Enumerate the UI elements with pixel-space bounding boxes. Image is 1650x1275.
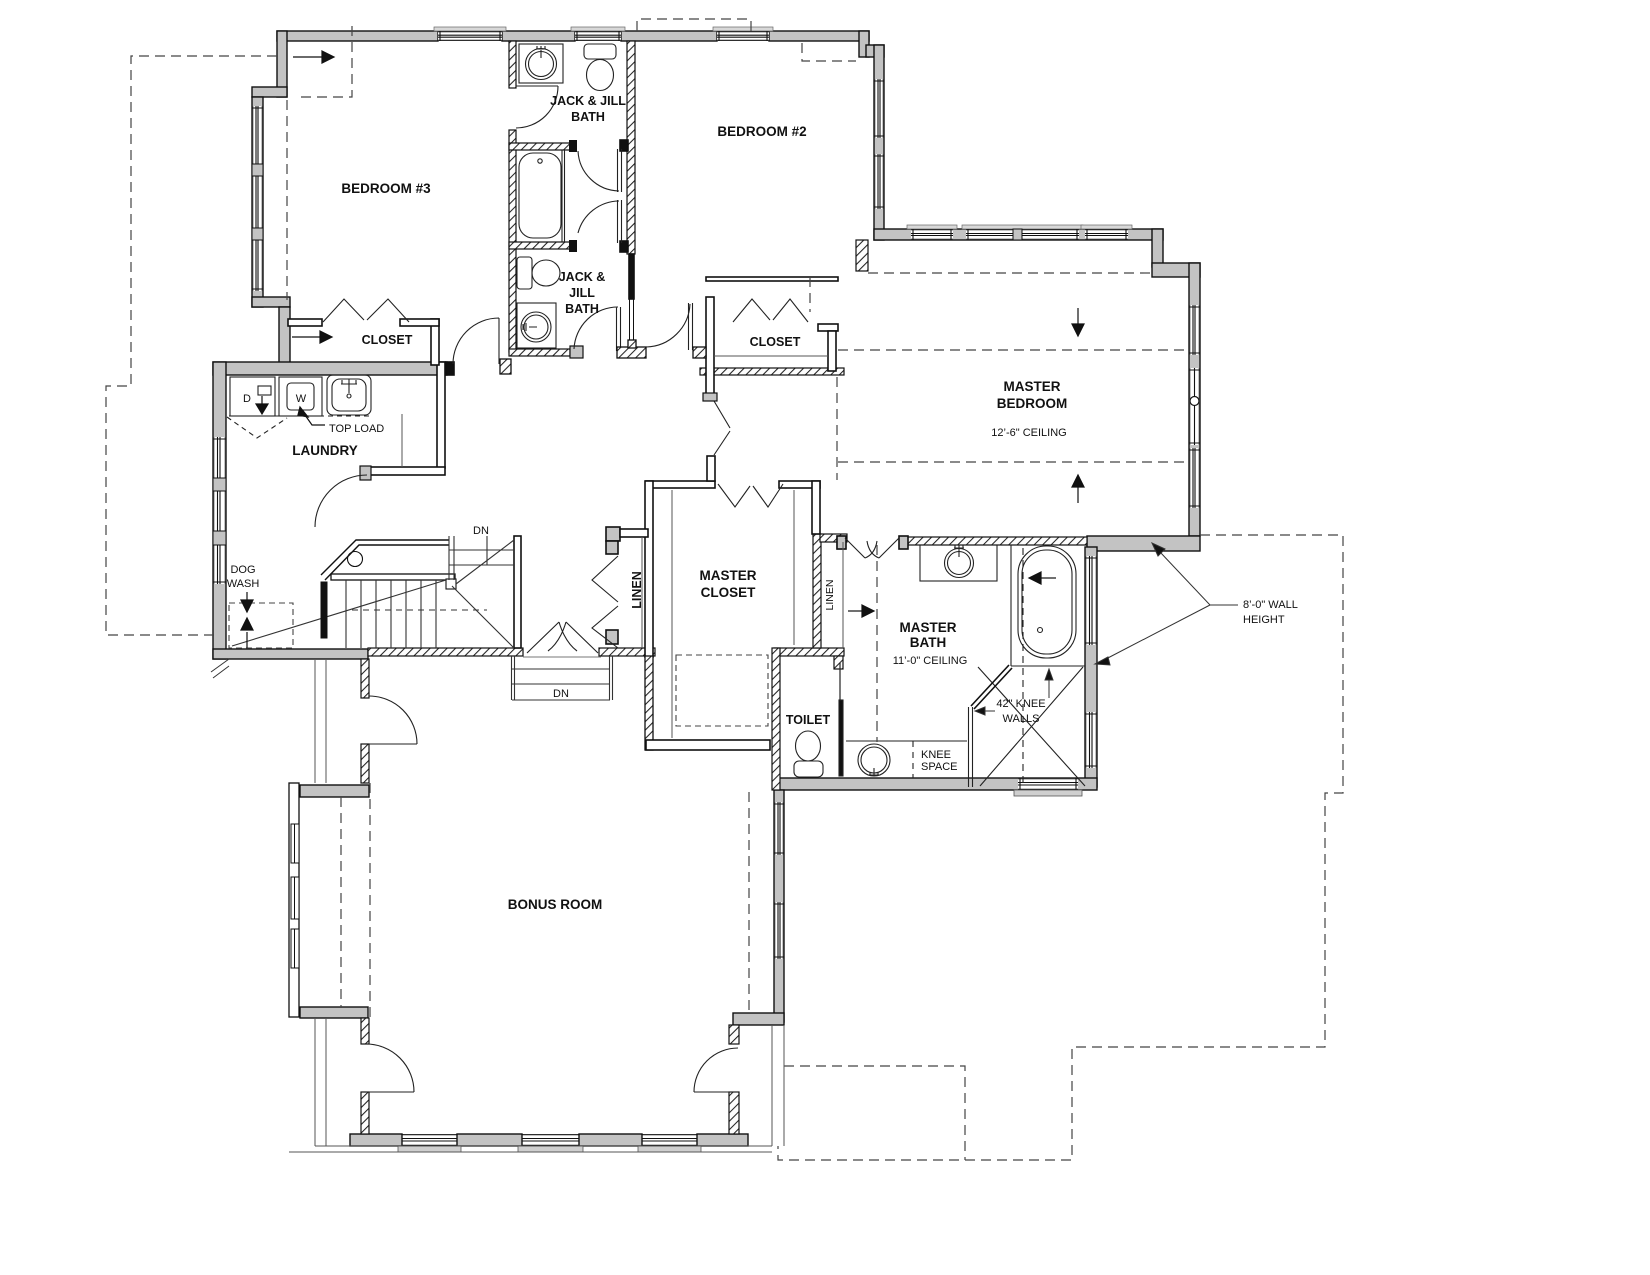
- svg-text:DN: DN: [553, 688, 569, 700]
- svg-text:MASTER: MASTER: [1004, 379, 1061, 394]
- svg-text:LAUNDRY: LAUNDRY: [292, 443, 358, 458]
- svg-text:W: W: [296, 393, 307, 405]
- svg-text:CLOSET: CLOSET: [750, 335, 801, 349]
- svg-text:BATH: BATH: [910, 635, 947, 650]
- svg-text:DOG: DOG: [230, 564, 255, 576]
- svg-text:TOP LOAD: TOP LOAD: [329, 423, 384, 435]
- svg-text:TOILET: TOILET: [786, 713, 831, 727]
- svg-text:WASH: WASH: [227, 578, 260, 590]
- svg-text:HEIGHT: HEIGHT: [1243, 614, 1285, 626]
- svg-text:BEDROOM #2: BEDROOM #2: [717, 124, 806, 139]
- svg-text:CLOSET: CLOSET: [701, 585, 757, 600]
- svg-text:BATH: BATH: [571, 110, 605, 124]
- svg-text:MASTER: MASTER: [700, 568, 757, 583]
- svg-text:BONUS ROOM: BONUS ROOM: [508, 897, 603, 912]
- svg-text:LINEN: LINEN: [630, 571, 644, 609]
- svg-text:JILL: JILL: [569, 286, 595, 300]
- svg-text:JACK &: JACK &: [559, 270, 606, 284]
- svg-text:BEDROOM #3: BEDROOM #3: [341, 181, 431, 196]
- svg-text:12’-6" CEILING: 12’-6" CEILING: [991, 427, 1066, 439]
- svg-text:SPACE: SPACE: [921, 761, 957, 773]
- svg-text:42" KNEE: 42" KNEE: [996, 698, 1045, 710]
- svg-text:DN: DN: [473, 525, 489, 537]
- svg-text:WALLS: WALLS: [1003, 713, 1040, 725]
- svg-text:MASTER: MASTER: [900, 620, 957, 635]
- svg-text:LINEN: LINEN: [824, 580, 836, 611]
- svg-text:11’-0" CEILING: 11’-0" CEILING: [893, 655, 968, 667]
- svg-text:D: D: [243, 393, 251, 405]
- svg-text:BATH: BATH: [565, 302, 599, 316]
- svg-text:JACK & JILL: JACK & JILL: [550, 94, 626, 108]
- svg-text:BEDROOM: BEDROOM: [997, 396, 1068, 411]
- svg-text:8’-0" WALL: 8’-0" WALL: [1243, 599, 1298, 611]
- svg-text:KNEE: KNEE: [921, 749, 951, 761]
- svg-text:CLOSET: CLOSET: [362, 333, 413, 347]
